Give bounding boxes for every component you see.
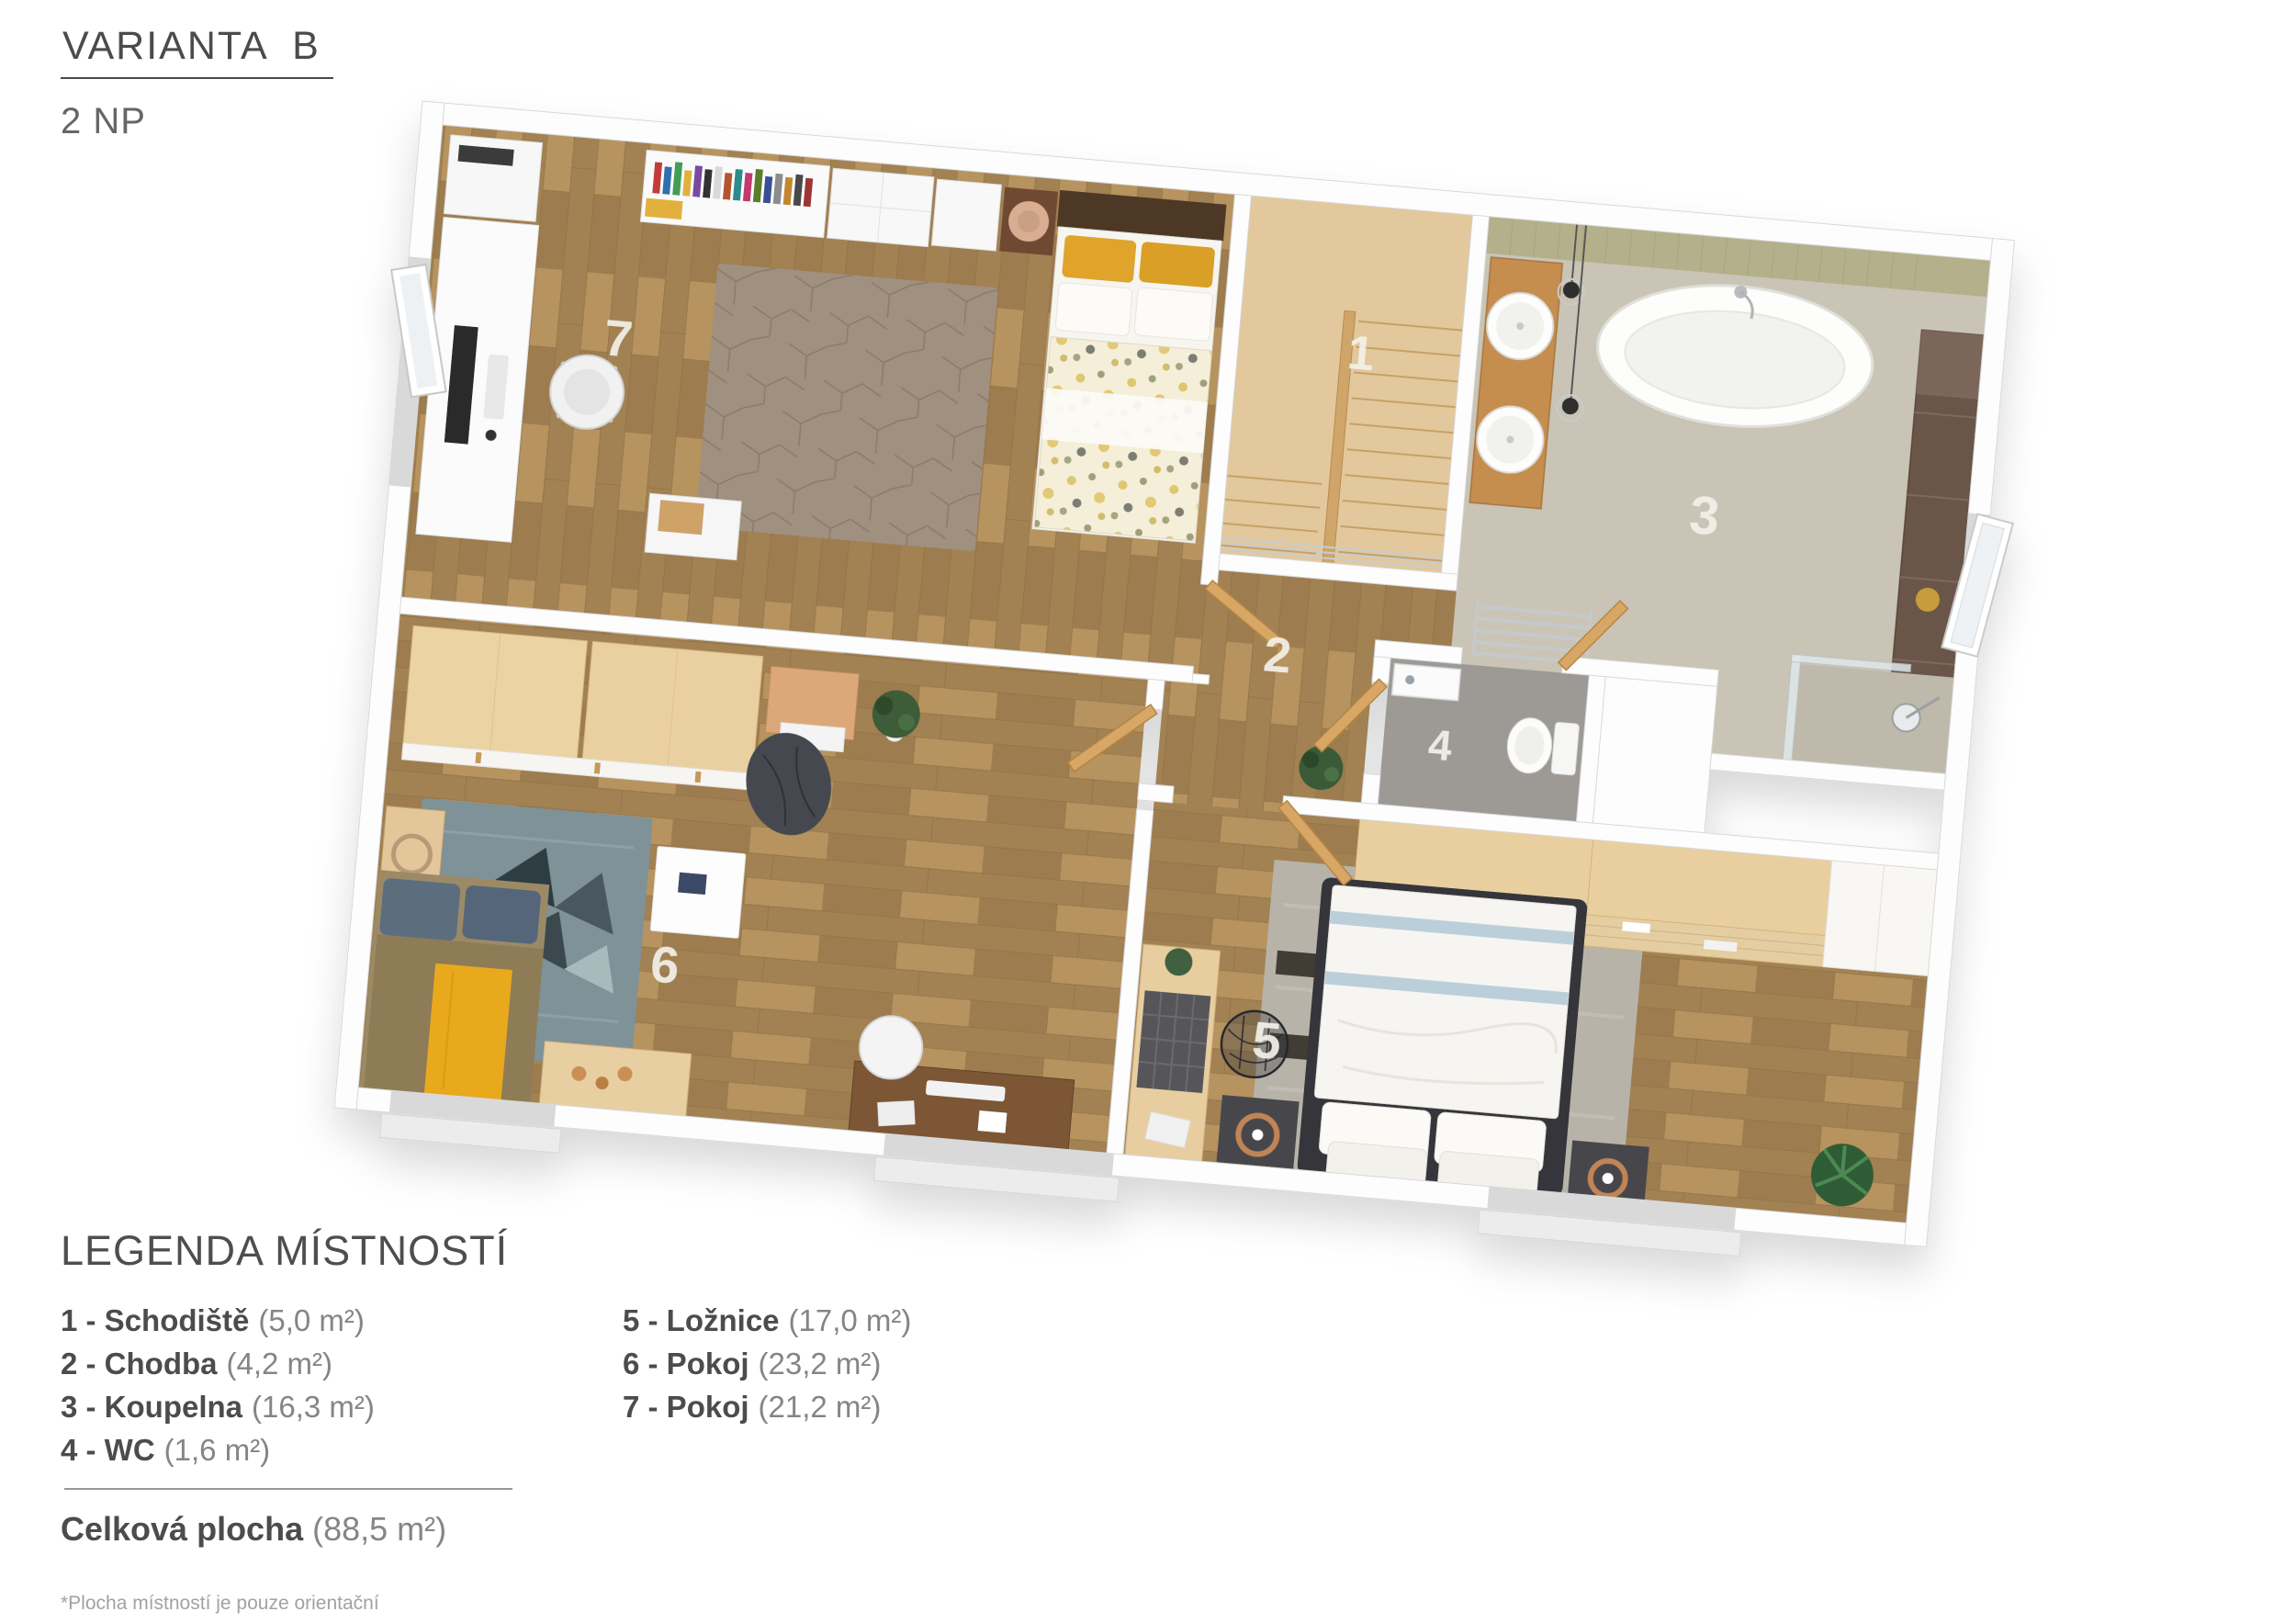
room-5-number: 5: [1250, 1010, 1284, 1070]
legend-total: Celková plocha(88,5 m²): [61, 1510, 1117, 1549]
total-label: Celková plocha: [61, 1510, 303, 1548]
legend-item-2: 2 - Chodba(4,2 m²): [61, 1342, 623, 1385]
page-title: VARIANTA B: [61, 24, 333, 79]
legend-title: LEGENDA MÍSTNOSTÍ: [61, 1227, 1117, 1275]
bed-room6: [360, 870, 549, 1102]
floor-label: 2 NP: [61, 101, 333, 142]
toilet-tank: [1551, 722, 1580, 775]
legend-column-right: 5 - Ložnice(17,0 m²) 6 - Pokoj(23,2 m²) …: [623, 1299, 1117, 1471]
legend-item-1: 1 - Schodiště(5,0 m²): [61, 1299, 623, 1342]
room-3-number: 3: [1687, 485, 1722, 547]
dresser-2: [931, 179, 1001, 251]
legend: LEGENDA MÍSTNOSTÍ 1 - Schodiště(5,0 m²) …: [61, 1227, 1117, 1615]
room-7-number: 7: [602, 308, 636, 367]
header: VARIANTA B 2 NP: [61, 24, 333, 142]
room-2-number: 2: [1261, 626, 1293, 683]
room-6-number: 6: [648, 934, 682, 994]
wc-sink: [1392, 664, 1461, 701]
bed-room7: [1030, 190, 1227, 543]
plan-rotated-group: 7 1 3 2 4 6 5: [316, 99, 2038, 1274]
page: VARIANTA B 2 NP: [0, 0, 2296, 1623]
bed-room5: [1297, 877, 1588, 1199]
legend-divider: [64, 1488, 512, 1490]
legend-item-4: 4 - WC(1,6 m²): [61, 1428, 623, 1471]
wood-box: [658, 500, 704, 535]
legend-footnote: *Plocha místností je pouze orientační: [61, 1593, 1117, 1615]
yellow-pillow-2: [1139, 242, 1216, 288]
legend-item-3: 3 - Koupelna(16,3 m²): [61, 1385, 623, 1428]
room-4-number: 4: [1426, 720, 1454, 770]
blue-pillow-1: [379, 878, 461, 941]
legend-column-left: 1 - Schodiště(5,0 m²) 2 - Chodba(4,2 m²)…: [61, 1299, 623, 1471]
legend-item-6: 6 - Pokoj(23,2 m²): [623, 1342, 1117, 1385]
white-pillow-2: [1134, 287, 1213, 342]
white-pillow-1: [1055, 282, 1132, 336]
yellow-pillow-1: [1062, 235, 1137, 284]
yellow-throw: [424, 964, 512, 1100]
room-1-number: 1: [1345, 326, 1377, 381]
legend-item-7: 7 - Pokoj(21,2 m²): [623, 1385, 1117, 1428]
table-decor: [678, 873, 707, 896]
total-area: (88,5 m²): [312, 1510, 446, 1548]
blue-pillow-2: [462, 885, 542, 944]
yellow-cubby: [645, 198, 683, 220]
legend-item-5: 5 - Ložnice(17,0 m²): [623, 1299, 1117, 1342]
tablet: [978, 1110, 1007, 1133]
